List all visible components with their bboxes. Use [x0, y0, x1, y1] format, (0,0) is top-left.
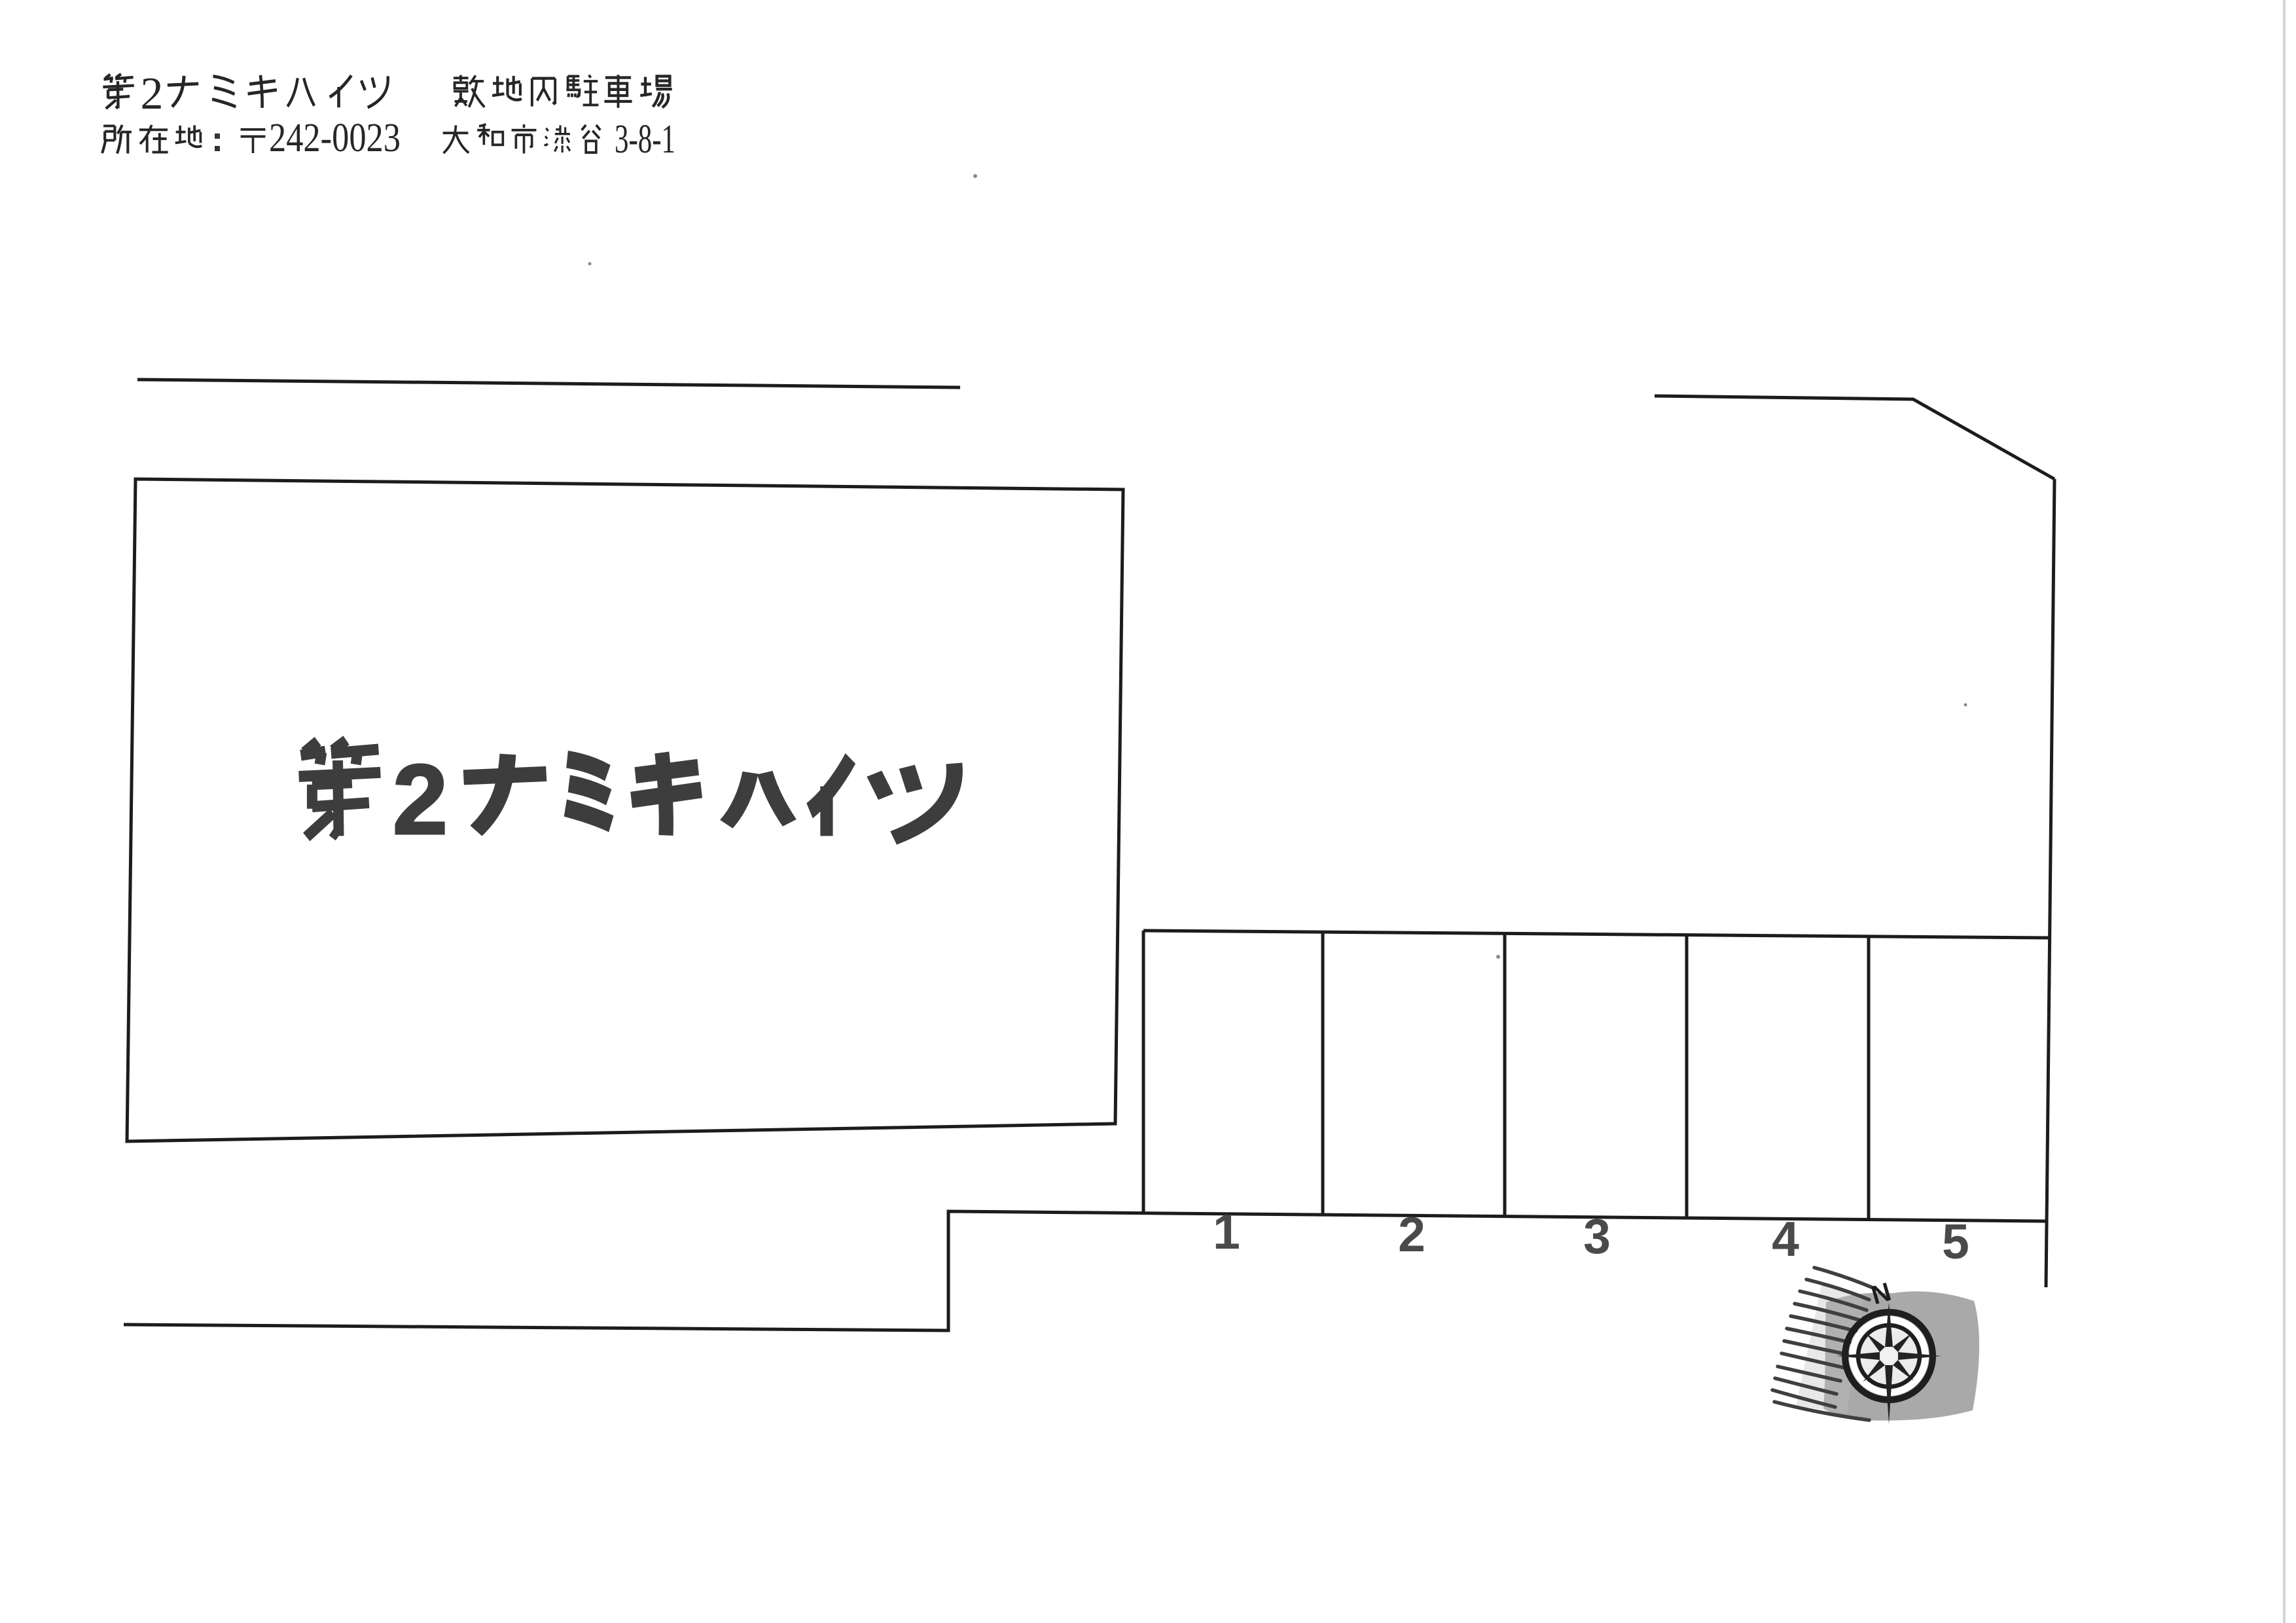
svg-text:5: 5	[1942, 1214, 1969, 1269]
svg-text:4: 4	[1772, 1211, 1799, 1266]
svg-text:3: 3	[1583, 1209, 1611, 1264]
svg-text:2: 2	[393, 744, 448, 855]
svg-text:1: 1	[1213, 1204, 1240, 1259]
svg-text:2: 2	[1398, 1207, 1426, 1262]
svg-text:3-8-1: 3-8-1	[615, 117, 675, 162]
svg-text:2: 2	[141, 69, 164, 119]
svg-text:242-0023: 242-0023	[269, 116, 401, 160]
